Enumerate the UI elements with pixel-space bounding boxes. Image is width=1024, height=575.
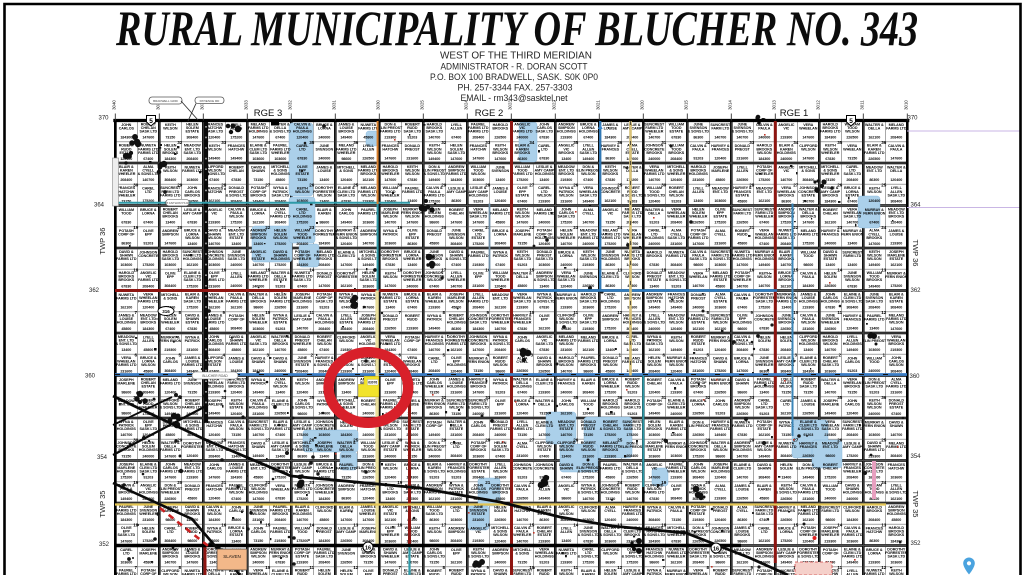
svg-text:MURRAY &FERN ENION240000: MURRAY &FERN ENION240000 (665, 569, 688, 575)
svg-text:15: 15 (265, 268, 271, 273)
svg-text:27: 27 (265, 183, 271, 188)
svg-text:5: 5 (179, 353, 182, 358)
svg-text:DAVID &SHAWNWILSON140700: DAVID &SHAWNWILSON140700 (207, 229, 222, 246)
svg-text:2: 2 (575, 353, 578, 358)
svg-text:16: 16 (749, 268, 755, 273)
svg-text:3014: 3014 (727, 100, 732, 110)
svg-text:15: 15 (529, 523, 535, 528)
svg-text:32: 32 (441, 395, 447, 400)
svg-text:8: 8 (707, 565, 710, 570)
svg-text:4: 4 (751, 353, 754, 358)
svg-text:13: 13 (881, 523, 887, 528)
svg-text:32: 32 (705, 140, 711, 145)
svg-text:KEITHWILSONWILSON147600: KEITHWILSONWILSON147600 (515, 207, 530, 224)
svg-text:ALMACYELLESTATE147600: ALMACYELLESTATE147600 (625, 144, 639, 161)
svg-text:18: 18 (397, 268, 403, 273)
svg-text:26: 26 (837, 183, 843, 188)
svg-text:63076: 63076 (368, 381, 377, 385)
svg-text:25: 25 (881, 183, 887, 188)
svg-text:BRADWELL GRID: BRADWELL GRID (153, 99, 179, 103)
svg-text:33: 33 (221, 140, 227, 145)
svg-text:OLIVEEPPESTATE175200: OLIVEEPPESTATE175200 (713, 207, 727, 224)
svg-text:24: 24 (353, 225, 359, 230)
svg-text:10: 10 (265, 565, 271, 570)
svg-text:CLIFFORDWILSON91203: CLIFFORDWILSON91203 (161, 569, 180, 575)
svg-text:12: 12 (617, 310, 623, 315)
svg-text:31: 31 (661, 395, 667, 400)
svg-text:LYELLALLENWILSON103600: LYELLALLENWILSON103600 (493, 462, 508, 479)
svg-text:20: 20 (705, 225, 711, 230)
svg-text:28: 28 (485, 438, 491, 443)
svg-text:5: 5 (707, 353, 710, 358)
svg-text:22: 22 (529, 480, 535, 485)
svg-text:BLUCHER ROAD: BLUCHER ROAD (202, 374, 228, 378)
svg-text:KEITHWILSONWILSON149400: KEITHWILSONWILSON149400 (427, 144, 442, 161)
svg-text:LESLIE &AMY CAMP& SONS LTD1407: LESLIE &AMY CAMP& SONS LTD140700 (622, 569, 644, 575)
svg-text:33: 33 (485, 395, 491, 400)
svg-text:3031: 3031 (331, 100, 336, 110)
svg-text:3033: 3033 (243, 100, 248, 110)
svg-text:24: 24 (617, 225, 623, 230)
svg-text:POTASHCORP OFESTATE147600: POTASHCORP OFESTATE147600 (140, 569, 157, 575)
svg-text:WYNA &PATRICKWILSON231600: WYNA &PATRICKWILSON231600 (559, 186, 575, 203)
svg-text:11: 11 (309, 310, 314, 315)
svg-text:29: 29 (441, 438, 447, 443)
svg-text:4: 4 (487, 353, 490, 358)
svg-text:BLAIR &KARENESTATE308400: BLAIR &KARENESTATE308400 (889, 292, 904, 309)
svg-text:15: 15 (793, 268, 799, 273)
svg-text:22: 22 (793, 225, 799, 230)
svg-text:10: 10 (793, 310, 799, 315)
svg-text:8: 8 (179, 565, 182, 570)
svg-text:19: 19 (133, 225, 139, 230)
svg-text:34: 34 (793, 140, 799, 145)
svg-text:14: 14 (309, 268, 315, 273)
svg-text:29: 29 (705, 183, 711, 188)
svg-text:10: 10 (265, 310, 271, 315)
svg-text:4: 4 (223, 353, 226, 358)
svg-text:32: 32 (705, 395, 711, 400)
svg-text:14: 14 (573, 268, 579, 273)
svg-text:8: 8 (707, 310, 710, 315)
svg-text:17: 17 (177, 268, 183, 273)
svg-text:30: 30 (133, 183, 139, 188)
svg-text:352: 352 (910, 541, 921, 547)
svg-text:WILLIAMTOODWILSON231600: WILLIAMTOODWILSON231600 (361, 441, 376, 458)
svg-text:11: 11 (573, 565, 578, 570)
svg-text:RGE 1: RGE 1 (780, 108, 809, 119)
svg-text:24: 24 (617, 480, 623, 485)
svg-text:12: 12 (353, 565, 359, 570)
svg-text:CARELLTDESTATE175200: CARELLTDESTATE175200 (471, 229, 485, 246)
svg-text:3024: 3024 (463, 100, 468, 110)
svg-text:364: 364 (910, 203, 921, 209)
svg-text:25: 25 (353, 438, 359, 443)
svg-text:12: 12 (881, 310, 887, 315)
svg-text:31: 31 (661, 140, 667, 145)
svg-text:13: 13 (353, 268, 359, 273)
svg-text:24: 24 (881, 225, 887, 230)
svg-text:24: 24 (881, 480, 887, 485)
svg-text:ADMINISTRATOR - R. DORAN SCOTT: ADMINISTRATOR - R. DORAN SCOTT (441, 62, 588, 73)
svg-text:29: 29 (441, 183, 447, 188)
svg-text:35: 35 (309, 395, 315, 400)
svg-text:26: 26 (573, 438, 579, 443)
svg-text:360: 360 (85, 374, 96, 380)
svg-text:11: 11 (309, 565, 314, 570)
svg-text:8: 8 (179, 310, 182, 315)
svg-text:POTASHCORP OF162100: POTASHCORP OF162100 (756, 569, 773, 575)
svg-text:35: 35 (837, 140, 843, 145)
svg-text:JOHNCARLOSWILSON308400: JOHNCARLOSWILSON308400 (691, 462, 707, 479)
svg-text:3032: 3032 (287, 100, 292, 110)
svg-text:16: 16 (221, 268, 227, 273)
svg-text:17: 17 (705, 523, 711, 528)
svg-text:19: 19 (397, 225, 403, 230)
svg-text:ST ANTHONYS RD: ST ANTHONYS RD (164, 201, 191, 205)
svg-text:16: 16 (749, 523, 755, 528)
svg-text:27: 27 (265, 438, 271, 443)
svg-text:21: 21 (749, 225, 755, 230)
svg-text:23: 23 (573, 480, 579, 485)
svg-text:15: 15 (793, 523, 799, 528)
svg-text:29: 29 (177, 438, 183, 443)
svg-text:26: 26 (309, 438, 315, 443)
svg-text:28: 28 (221, 183, 227, 188)
svg-text:19: 19 (397, 480, 403, 485)
svg-text:16: 16 (365, 545, 371, 551)
svg-text:HELENSOLEM103600: HELENSOLEM103600 (340, 569, 353, 575)
svg-text:3010: 3010 (903, 100, 908, 110)
svg-text:364: 364 (94, 203, 105, 209)
svg-text:LYELLALLEN147600: LYELLALLEN147600 (846, 569, 858, 575)
svg-text:25: 25 (881, 438, 887, 443)
svg-text:30: 30 (661, 183, 667, 188)
svg-text:3020: 3020 (639, 100, 644, 110)
svg-text:23: 23 (309, 480, 315, 485)
svg-text:36: 36 (617, 140, 623, 145)
svg-text:35: 35 (837, 395, 843, 400)
svg-text:3: 3 (267, 353, 270, 358)
svg-text:HELENSOLEMWILSON175200: HELENSOLEMWILSON175200 (273, 229, 288, 246)
svg-text:26: 26 (573, 183, 579, 188)
svg-text:16: 16 (485, 523, 491, 528)
svg-text:6: 6 (663, 353, 666, 358)
svg-text:BLAIR &KAREN219300: BLAIR &KAREN219300 (581, 569, 596, 575)
svg-text:9: 9 (487, 310, 490, 315)
svg-text:PH. 257-3344 FAX. 257-3303: PH. 257-3344 FAX. 257-3303 (458, 83, 573, 94)
svg-text:14: 14 (309, 523, 315, 528)
svg-text:32: 32 (441, 140, 447, 145)
svg-text:28: 28 (749, 183, 755, 188)
svg-text:34: 34 (265, 395, 271, 400)
svg-text:TWP 35: TWP 35 (98, 491, 107, 518)
svg-text:35: 35 (309, 140, 315, 145)
svg-text:SLAVEN: SLAVEN (223, 554, 240, 559)
svg-text:370: 370 (98, 116, 109, 122)
svg-text:34: 34 (529, 140, 535, 145)
svg-text:18: 18 (661, 523, 667, 528)
svg-text:9: 9 (751, 310, 754, 315)
svg-text:33: 33 (221, 395, 227, 400)
svg-text:29: 29 (705, 438, 711, 443)
svg-text:362: 362 (910, 288, 921, 294)
svg-text:27: 27 (529, 438, 535, 443)
svg-text:1: 1 (883, 353, 886, 358)
svg-text:1: 1 (619, 353, 622, 358)
svg-text:16: 16 (221, 523, 227, 528)
svg-text:3011: 3011 (859, 100, 864, 110)
svg-text:12: 12 (881, 565, 887, 570)
svg-text:LYELLALLENESTATE308400: LYELLALLENESTATE308400 (339, 314, 353, 331)
svg-text:26: 26 (309, 183, 315, 188)
svg-text:30: 30 (397, 183, 403, 188)
svg-text:36: 36 (617, 395, 623, 400)
svg-text:5: 5 (149, 118, 153, 125)
svg-text:11: 11 (837, 310, 842, 315)
svg-text:NUWETAFARMS LTD120400: NUWETAFARMS LTD120400 (182, 569, 203, 575)
svg-text:RGE 2: RGE 2 (475, 108, 504, 119)
svg-text:3030: 3030 (375, 100, 380, 110)
svg-text:3012: 3012 (815, 100, 820, 110)
svg-text:362: 362 (89, 288, 100, 294)
svg-text:PATIENCE RD: PATIENCE RD (200, 99, 221, 103)
svg-text:3021: 3021 (595, 100, 600, 110)
svg-text:28: 28 (485, 183, 491, 188)
svg-text:10: 10 (529, 310, 535, 315)
svg-text:20: 20 (441, 225, 447, 230)
svg-text:18: 18 (661, 268, 667, 273)
svg-text:HELENSOLEMWILSON208400: HELENSOLEMWILSON208400 (647, 356, 662, 373)
svg-text:7: 7 (135, 565, 138, 570)
svg-text:3013: 3013 (771, 100, 776, 110)
svg-text:CARELLTDWILSON219300: CARELLTDWILSON219300 (537, 186, 552, 203)
svg-text:19: 19 (133, 480, 139, 485)
svg-text:8: 8 (443, 310, 446, 315)
svg-text:20: 20 (177, 480, 183, 485)
svg-text:7: 7 (135, 310, 138, 315)
svg-text:17: 17 (441, 268, 447, 273)
svg-text:36: 36 (881, 140, 887, 145)
svg-text:27: 27 (529, 183, 535, 188)
svg-text:19: 19 (661, 480, 667, 485)
svg-text:KEITHWILSONESTATE120400: KEITHWILSONESTATE120400 (229, 399, 244, 416)
svg-text:ELAINE &CLEM LTD184300: ELAINE &CLEM LTD184300 (271, 569, 289, 575)
svg-text:6: 6 (135, 353, 138, 358)
svg-text:7: 7 (399, 565, 402, 570)
svg-text:23: 23 (837, 480, 843, 485)
svg-text:14: 14 (837, 523, 843, 528)
svg-text:27: 27 (793, 183, 799, 188)
svg-text:P.O. BOX 100 BRADWELL, SASK. S: P.O. BOX 100 BRADWELL, SASK. S0K 0P0 (430, 72, 598, 83)
svg-text:36: 36 (353, 140, 359, 145)
svg-text:KEITHWILSONWILSON240000: KEITHWILSONWILSON240000 (867, 399, 882, 416)
svg-text:360: 360 (909, 374, 920, 380)
svg-text:7: 7 (663, 310, 666, 315)
svg-text:20: 20 (177, 225, 183, 230)
svg-text:3: 3 (795, 353, 798, 358)
svg-text:3015: 3015 (683, 100, 688, 110)
svg-text:9: 9 (487, 565, 490, 570)
svg-text:25: 25 (353, 183, 359, 188)
svg-text:23: 23 (309, 225, 315, 230)
svg-text:TWP 36: TWP 36 (98, 228, 107, 255)
svg-text:25: 25 (617, 183, 623, 188)
svg-text:RGE 3: RGE 3 (254, 108, 283, 119)
svg-text:21: 21 (749, 480, 755, 485)
svg-text:13: 13 (617, 268, 623, 273)
svg-text:RURAL MUNICIPALITY OF BLUCHER: RURAL MUNICIPALITY OF BLUCHER NO. 343 (115, 0, 918, 56)
svg-text:2: 2 (311, 353, 314, 358)
svg-text:12: 12 (617, 565, 623, 570)
svg-text:35: 35 (573, 395, 579, 400)
svg-text:316: 316 (162, 309, 170, 314)
svg-text:23: 23 (573, 225, 579, 230)
svg-text:6: 6 (399, 353, 402, 358)
svg-text:19: 19 (661, 225, 667, 230)
svg-text:20: 20 (705, 480, 711, 485)
svg-text:352: 352 (99, 542, 110, 548)
svg-text:ALMACYELLESTATE103600: ALMACYELLESTATE103600 (713, 292, 727, 309)
svg-text:21: 21 (221, 480, 227, 485)
svg-text:15: 15 (265, 523, 271, 528)
svg-text:9: 9 (223, 310, 226, 315)
svg-text:22: 22 (265, 225, 271, 230)
svg-text:34: 34 (265, 140, 271, 145)
svg-text:WYNA &PATRICK184300: WYNA &PATRICK184300 (471, 569, 487, 575)
svg-text:3040: 3040 (111, 100, 116, 110)
svg-text:16: 16 (713, 546, 719, 552)
svg-text:28: 28 (221, 438, 227, 443)
svg-text:WILLIAMTOODWILSON103600: WILLIAMTOODWILSON103600 (471, 165, 486, 182)
svg-text:33: 33 (749, 395, 755, 400)
svg-text:11: 11 (573, 310, 578, 315)
svg-text:ELAINE &CLEM LTDWHEELER120400: ELAINE &CLEM LTDWHEELER120400 (403, 569, 421, 575)
svg-text:3022: 3022 (551, 100, 556, 110)
svg-text:18: 18 (133, 268, 139, 273)
svg-text:34: 34 (529, 395, 535, 400)
svg-text:2: 2 (839, 353, 842, 358)
svg-text:8: 8 (443, 565, 446, 570)
svg-text:3025: 3025 (419, 100, 424, 110)
svg-text:21: 21 (221, 225, 227, 230)
svg-text:5: 5 (849, 118, 853, 125)
svg-text:32: 32 (177, 140, 183, 145)
svg-text:33: 33 (485, 140, 491, 145)
svg-text:354: 354 (910, 454, 921, 460)
svg-text:22: 22 (529, 225, 535, 230)
svg-text:34: 34 (793, 395, 799, 400)
svg-text:WEST OF THE THIRD MERIDIAN: WEST OF THE THIRD MERIDIAN (440, 49, 592, 61)
svg-text:18: 18 (397, 523, 403, 528)
svg-text:25: 25 (617, 438, 623, 443)
svg-text:17: 17 (705, 268, 711, 273)
svg-text:7: 7 (663, 565, 666, 570)
svg-text:KEITHWILSONWILSON149400: KEITHWILSONWILSON149400 (867, 250, 882, 267)
svg-text:WYNA &PATRICKESTATE149400: WYNA &PATRICKESTATE149400 (647, 569, 663, 575)
svg-text:14: 14 (573, 523, 579, 528)
svg-text:12: 12 (353, 310, 359, 315)
svg-text:28: 28 (749, 438, 755, 443)
svg-text:3023: 3023 (507, 100, 512, 110)
svg-text:354: 354 (97, 455, 108, 461)
svg-text:20: 20 (441, 480, 447, 485)
svg-text:13: 13 (881, 268, 887, 273)
svg-text:22: 22 (793, 480, 799, 485)
svg-text:15: 15 (529, 268, 535, 273)
svg-text:7: 7 (399, 310, 402, 315)
svg-text:35: 35 (573, 140, 579, 145)
svg-text:31: 31 (397, 140, 403, 145)
svg-text:36: 36 (353, 395, 359, 400)
svg-text:29: 29 (177, 183, 183, 188)
svg-text:HELENSOLEMESTATE308400: HELENSOLEMESTATE308400 (185, 122, 199, 139)
svg-text:370: 370 (907, 116, 918, 122)
svg-text:TWP 35: TWP 35 (911, 491, 920, 518)
svg-text:26: 26 (837, 438, 843, 443)
svg-text:TWP 36: TWP 36 (911, 240, 920, 267)
svg-text:11: 11 (837, 565, 842, 570)
svg-text:13: 13 (353, 523, 359, 528)
svg-text:23: 23 (837, 225, 843, 230)
svg-text:33: 33 (749, 140, 755, 145)
svg-text:30: 30 (397, 438, 403, 443)
svg-text:14: 14 (837, 268, 843, 273)
svg-text:17: 17 (441, 523, 447, 528)
svg-text:21: 21 (485, 480, 491, 485)
svg-text:JOHNCARLOSWILSON308400: JOHNCARLOSWILSON308400 (889, 356, 905, 373)
svg-text:36: 36 (881, 395, 887, 400)
svg-text:5: 5 (443, 353, 446, 358)
svg-text:KEITHWILSONWILSON226500: KEITHWILSONWILSON226500 (559, 569, 574, 575)
svg-text:22: 22 (265, 480, 271, 485)
svg-text:9: 9 (751, 565, 754, 570)
